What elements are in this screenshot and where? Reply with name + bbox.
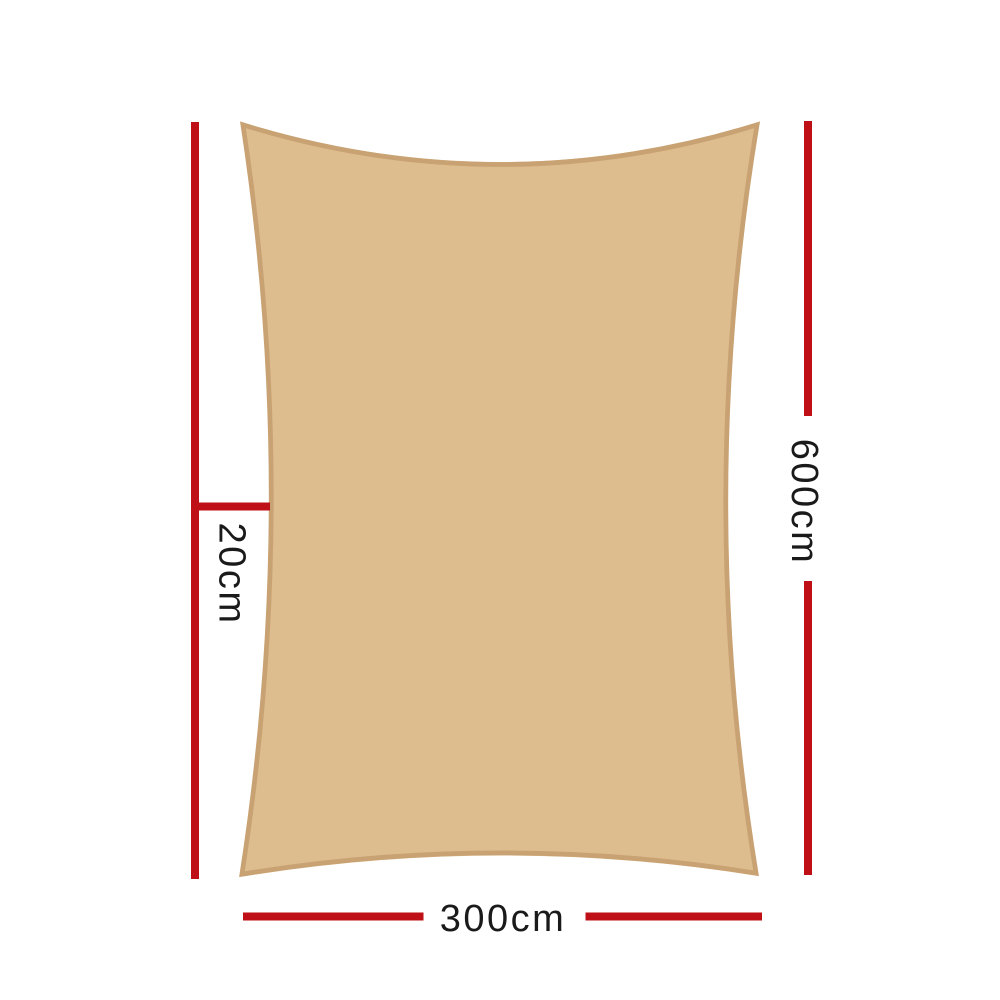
svg-text:20cm: 20cm — [211, 523, 253, 626]
svg-text:300cm: 300cm — [440, 898, 567, 940]
svg-text:600cm: 600cm — [783, 439, 825, 566]
